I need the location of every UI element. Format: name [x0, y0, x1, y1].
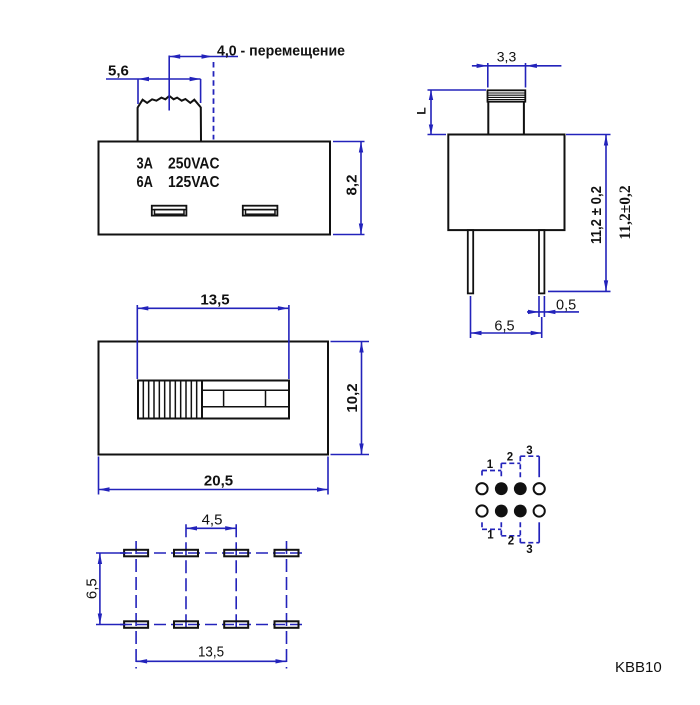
svg-text:1: 1	[487, 459, 494, 471]
svg-text:3A: 3A	[137, 155, 153, 172]
svg-text:6,5: 6,5	[84, 578, 101, 599]
svg-text:250VAC: 250VAC	[168, 155, 220, 172]
svg-text:L: L	[415, 107, 429, 114]
svg-text:3,3: 3,3	[497, 49, 517, 65]
svg-text:20,5: 20,5	[204, 473, 233, 490]
svg-text:KBB10: KBB10	[615, 659, 662, 676]
svg-text:10,2: 10,2	[344, 383, 361, 412]
svg-text:3: 3	[526, 544, 532, 556]
svg-text:11,2±0,2: 11,2±0,2	[617, 185, 634, 239]
svg-text:6A: 6A	[137, 174, 153, 191]
svg-text:125VAC: 125VAC	[168, 174, 220, 191]
svg-text:13,5: 13,5	[200, 292, 229, 309]
svg-text:4,0 - перемещение: 4,0 - перемещение	[217, 42, 345, 59]
svg-text:13,5: 13,5	[198, 644, 224, 661]
svg-text:2: 2	[508, 536, 514, 548]
svg-text:5,6: 5,6	[108, 63, 129, 80]
svg-text:0,5: 0,5	[556, 298, 576, 314]
svg-text:3: 3	[526, 445, 532, 457]
svg-text:1: 1	[487, 530, 494, 542]
svg-text:2: 2	[507, 451, 513, 463]
svg-text:8,2: 8,2	[344, 175, 361, 196]
svg-text:4,5: 4,5	[202, 512, 223, 529]
svg-text:6,5: 6,5	[494, 319, 514, 335]
svg-text:11,2 ± 0,2: 11,2 ± 0,2	[588, 186, 605, 244]
